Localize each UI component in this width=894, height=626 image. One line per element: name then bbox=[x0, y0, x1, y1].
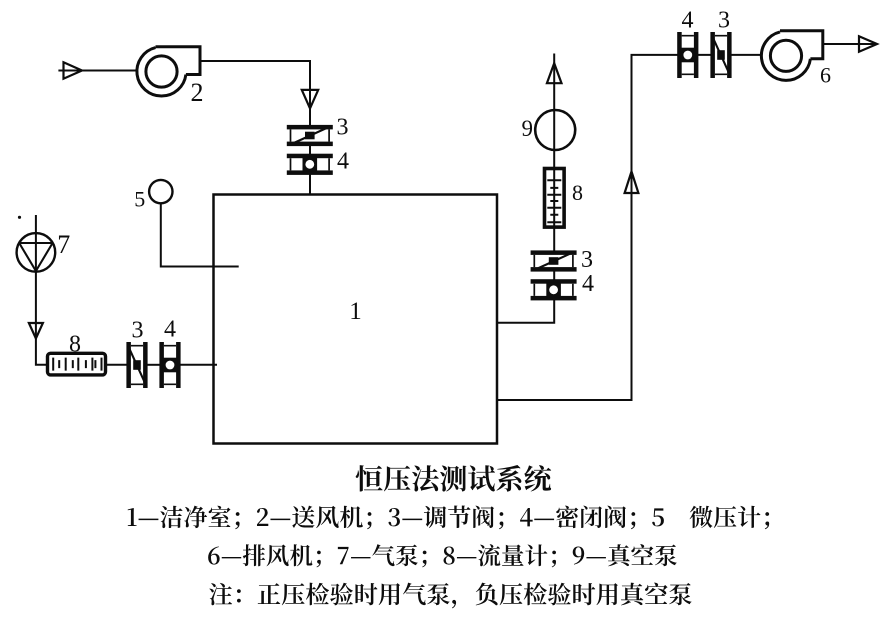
svg-text:4: 4 bbox=[337, 149, 349, 175]
svg-text:3: 3 bbox=[132, 318, 144, 344]
svg-text:2: 2 bbox=[191, 78, 204, 107]
svg-text:6: 6 bbox=[820, 63, 831, 88]
svg-text:3: 3 bbox=[718, 8, 730, 34]
svg-text:3: 3 bbox=[337, 115, 349, 141]
svg-text:1: 1 bbox=[349, 298, 362, 325]
svg-text:8: 8 bbox=[69, 332, 81, 358]
svg-text:8: 8 bbox=[572, 180, 583, 205]
svg-text:9: 9 bbox=[522, 116, 534, 141]
svg-text:4: 4 bbox=[164, 317, 176, 343]
svg-text:7: 7 bbox=[57, 230, 70, 259]
svg-text:3: 3 bbox=[581, 247, 593, 273]
svg-text:4: 4 bbox=[582, 271, 594, 297]
svg-text:5: 5 bbox=[134, 187, 145, 212]
svg-text:4: 4 bbox=[682, 8, 694, 34]
